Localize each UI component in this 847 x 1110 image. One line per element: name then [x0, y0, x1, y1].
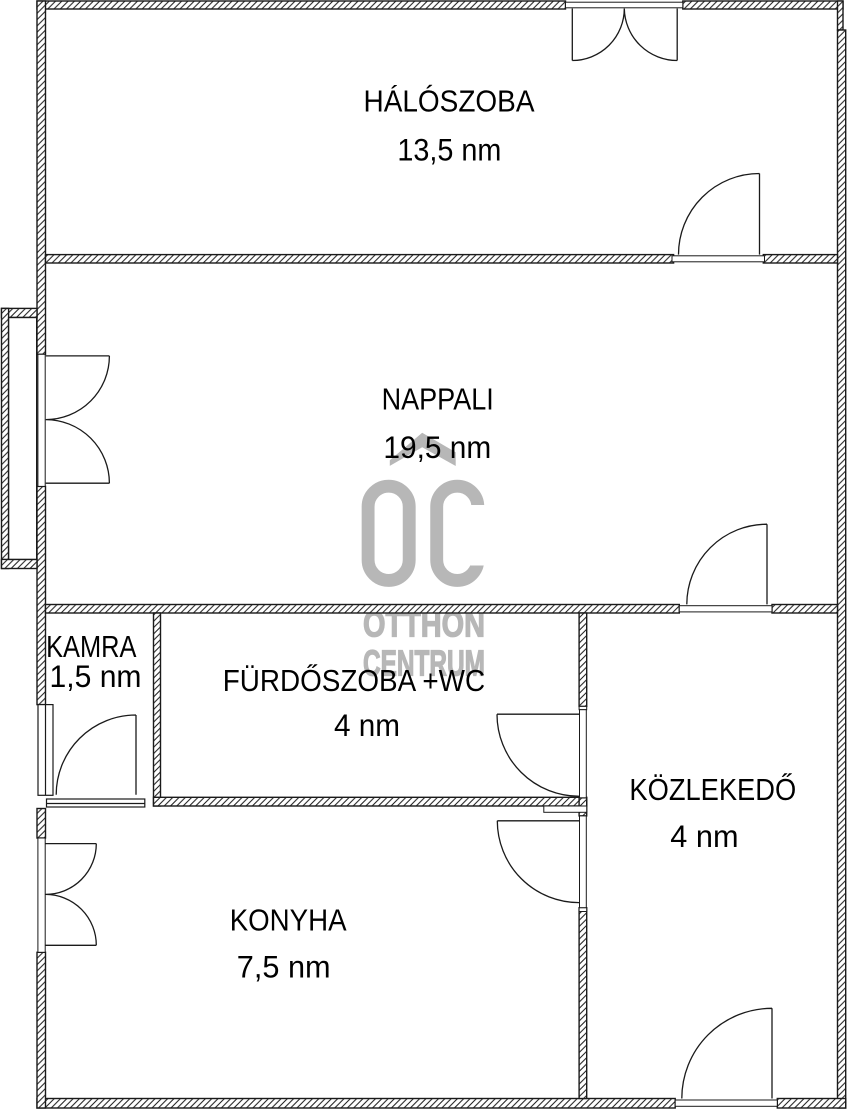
svg-text:7,5 nm: 7,5 nm	[237, 948, 331, 984]
svg-text:4 nm: 4 nm	[334, 707, 400, 743]
svg-text:19,5 nm: 19,5 nm	[383, 429, 491, 465]
svg-text:KONYHA: KONYHA	[230, 904, 348, 937]
svg-text:KÖZLEKEDŐ: KÖZLEKEDŐ	[629, 774, 796, 807]
svg-text:1,5 nm: 1,5 nm	[50, 658, 142, 694]
svg-text:NAPPALI: NAPPALI	[382, 383, 494, 416]
svg-text:4 nm: 4 nm	[670, 818, 738, 854]
svg-text:13,5 nm: 13,5 nm	[397, 132, 501, 168]
svg-text:HÁLÓSZOBA: HÁLÓSZOBA	[364, 86, 536, 119]
svg-text:FÜRDŐSZOBA +WC: FÜRDŐSZOBA +WC	[223, 665, 485, 698]
